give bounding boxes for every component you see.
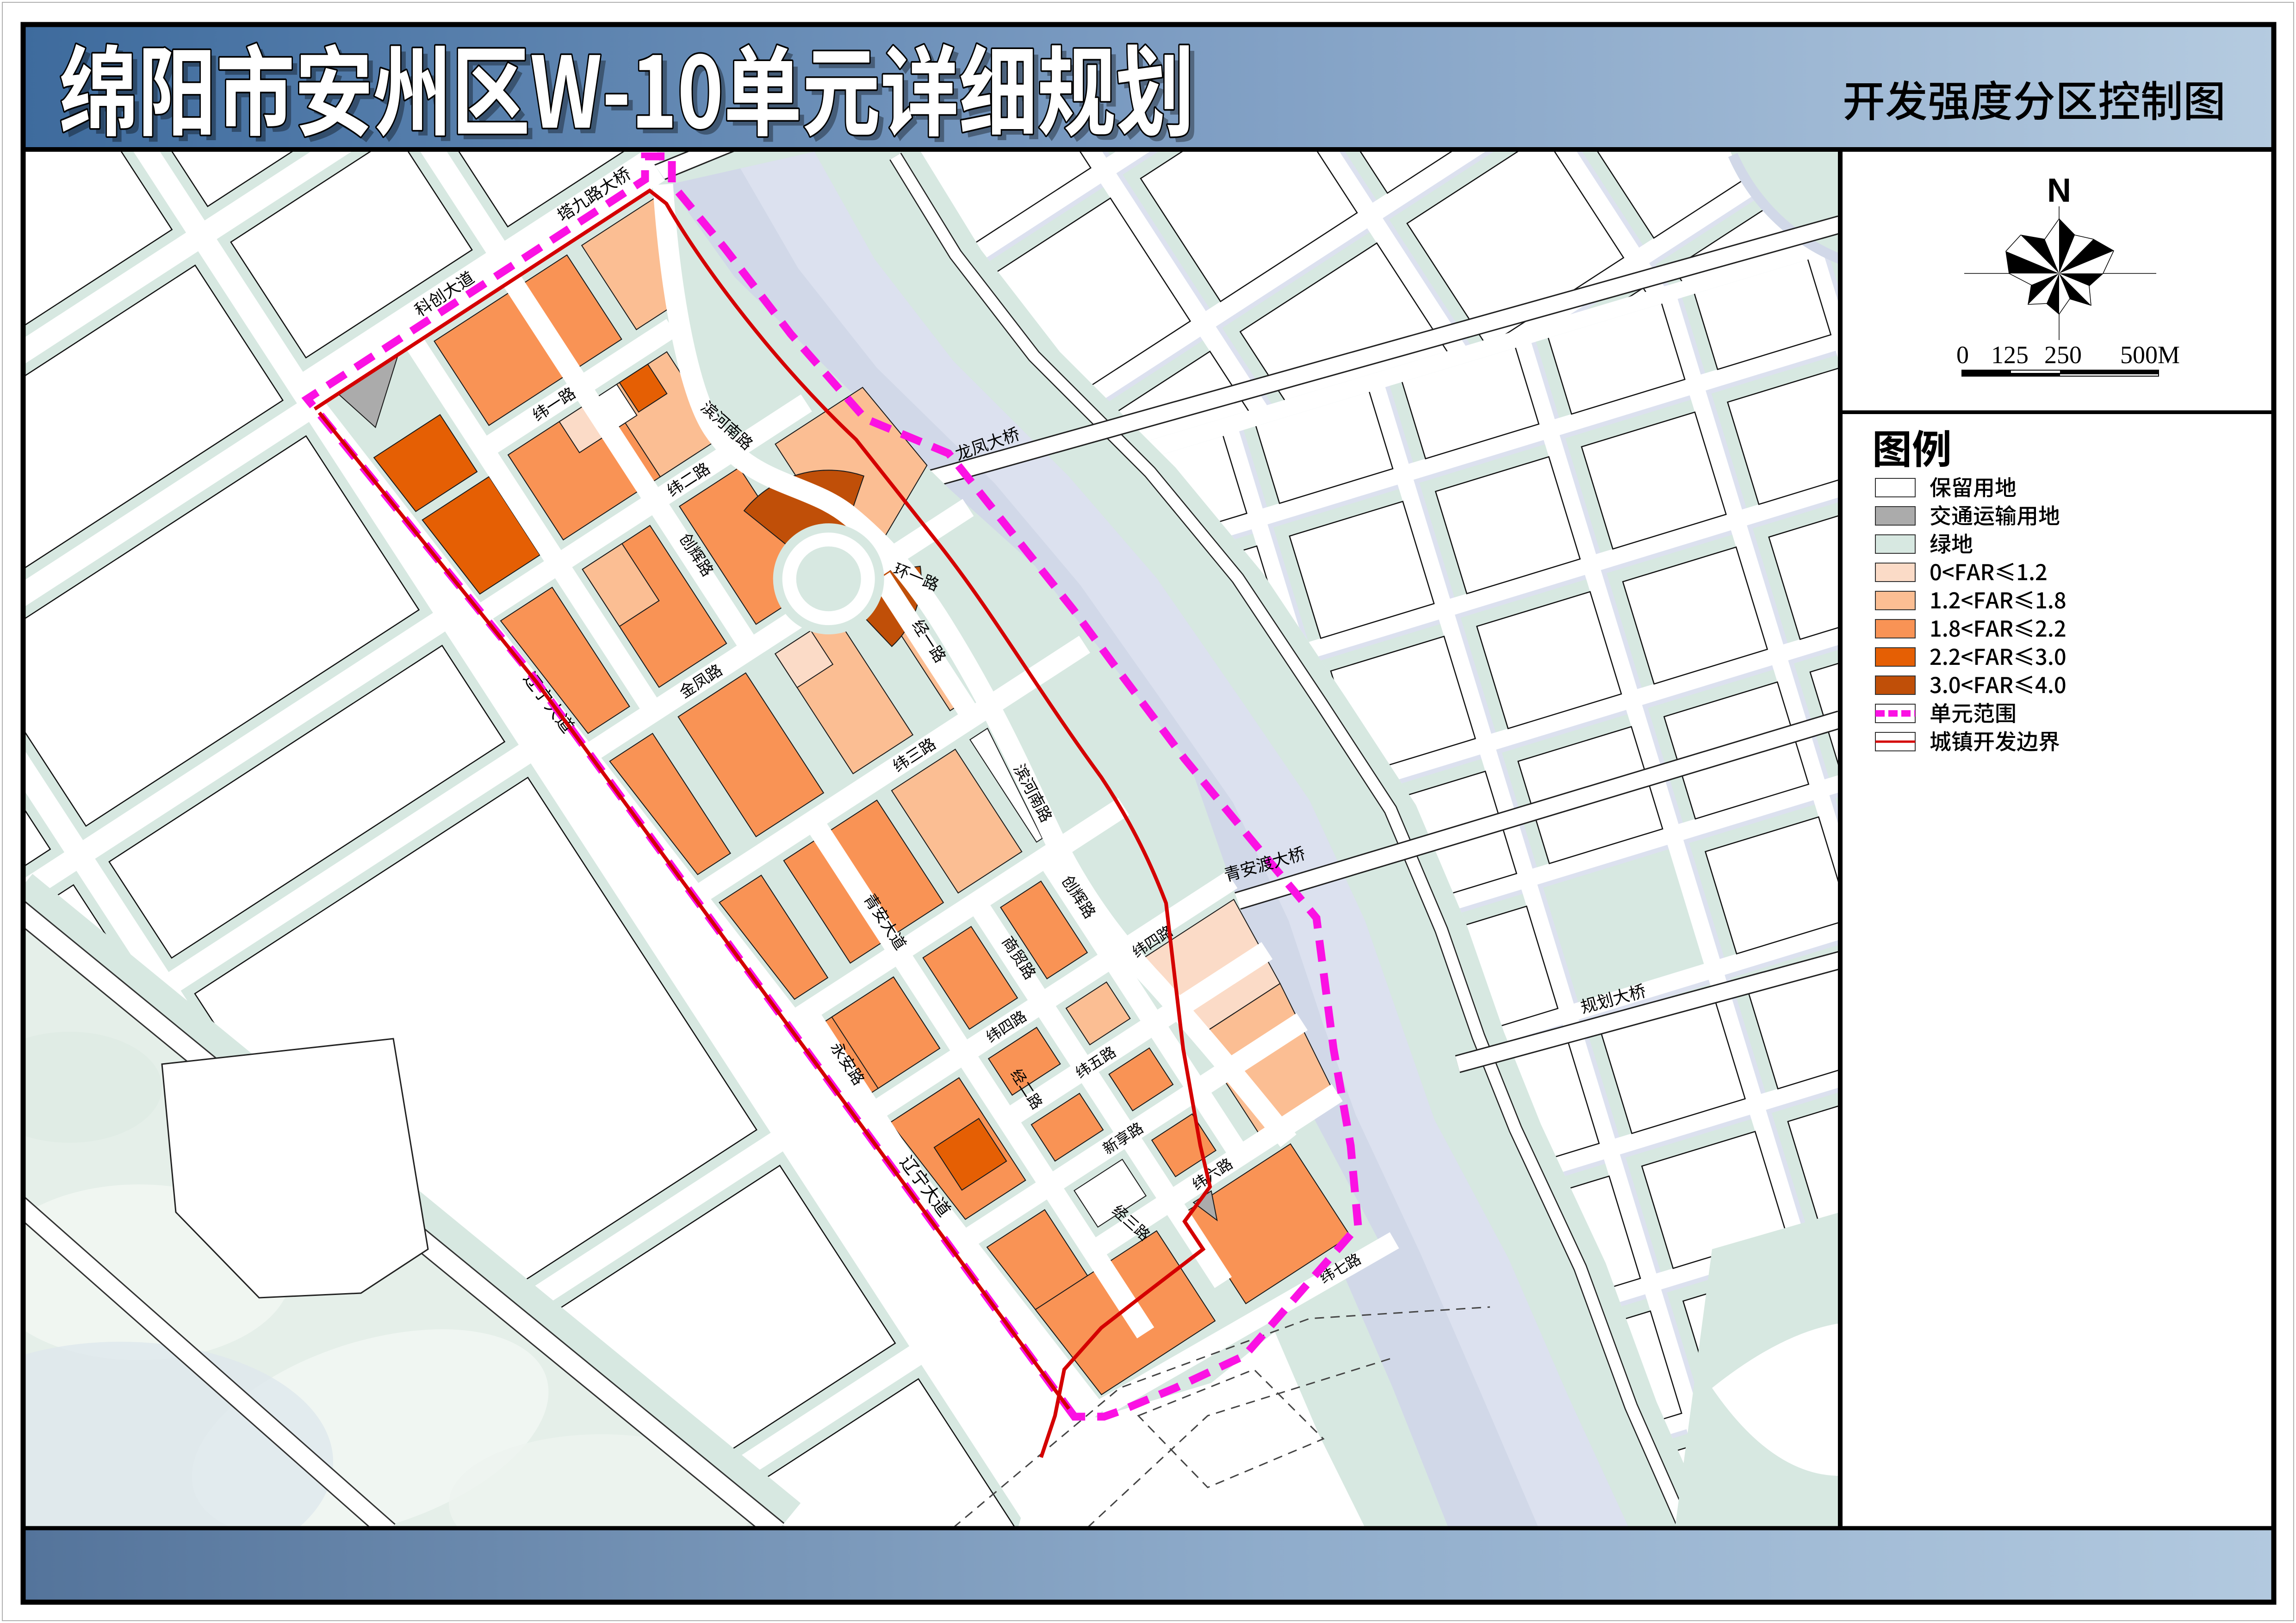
svg-text:500M: 500M bbox=[2120, 341, 2180, 369]
svg-text:125: 125 bbox=[1991, 341, 2029, 369]
svg-text:250: 250 bbox=[2044, 341, 2082, 369]
svg-text:N: N bbox=[2047, 172, 2071, 209]
svg-text:0: 0 bbox=[1956, 341, 1969, 369]
